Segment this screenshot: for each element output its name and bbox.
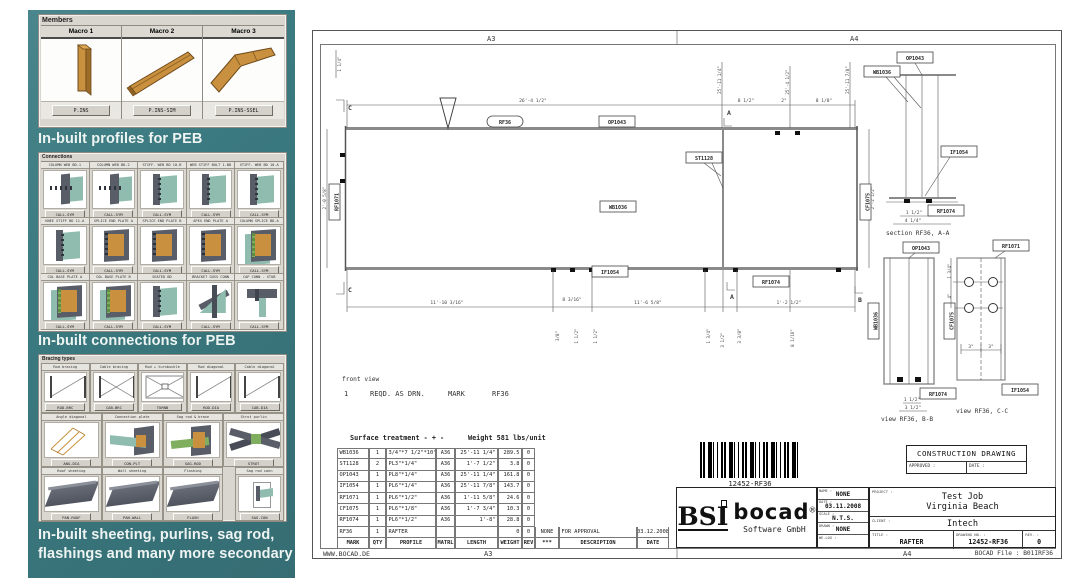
macro-beam-image[interactable] (203, 39, 284, 102)
macro-list: Macro 1 (41, 25, 284, 119)
connection-button[interactable]: CALL-SYM (45, 266, 85, 274)
heading-connections: In-built connections for PEB (38, 333, 236, 349)
bom-header: *** (535, 538, 559, 549)
part-label-rf1071: RF1071 (335, 193, 341, 211)
part-label-rf1071: RF1071 (1002, 244, 1020, 250)
sheeting-button[interactable]: PAN-ROOF (51, 513, 91, 521)
dimension-text: 4 1/4" (905, 218, 922, 224)
connection-button[interactable]: CALL-SYM (93, 322, 133, 330)
connection-thumbnail[interactable] (140, 226, 184, 265)
bom-header: DESCRIPTION (559, 538, 637, 549)
connection-label: SEATED BD (138, 274, 186, 281)
connection-thumbnail[interactable] (140, 170, 184, 209)
dimension-text: 8 3/16" (562, 297, 581, 303)
project-location: Virginia Beach (870, 502, 1055, 512)
bom-mark: ST1128 (337, 459, 369, 470)
bracing-button[interactable]: TURNB (142, 403, 182, 411)
sheeting-cell: Roof sheeting PAN-ROOF (41, 467, 102, 521)
bom-material: A36 (436, 493, 455, 504)
heading-profiles: In-built profiles for PEB (38, 131, 202, 147)
bracing-label: Rod bracing (42, 364, 89, 371)
bom-material: A36 (436, 471, 455, 482)
bom-rev: 0 (522, 493, 535, 504)
connection-thumbnail[interactable] (189, 282, 233, 321)
sheeting-thumbnail[interactable] (105, 476, 160, 512)
bom-qty: 1 (369, 516, 386, 527)
bracing-cell: Cable bracing (90, 363, 139, 413)
connection-label: COLUMN SPLICE BD-A (235, 218, 283, 225)
connection-button[interactable]: CALL-SYM (93, 210, 133, 218)
dimension-text: 8 1/2" (738, 98, 755, 104)
haunched-beam-icon (203, 39, 284, 101)
bolt-marks (340, 131, 841, 272)
rod-diagonal-icon (239, 373, 281, 401)
bom-material: A36 (436, 459, 455, 470)
title-cell: TITLE : RAFTER (870, 531, 953, 549)
website-text: WWW.BOCAD.DE (323, 550, 370, 558)
dimension-text: 3" (988, 344, 994, 350)
macro-name: Macro 1 (41, 26, 121, 39)
front-view-caption: front view (342, 376, 380, 383)
connection-cell: BRACKET GUSS CONN CALL-SYM (187, 274, 236, 330)
turnbuckle-x-icon (142, 373, 184, 401)
connection-thumbnail[interactable] (43, 226, 87, 265)
macro-button[interactable]: P.INS-SIM (133, 105, 191, 116)
rod-diagonal-icon (191, 373, 233, 401)
bocad-logo: BSI bocad® Software GmbH (676, 487, 817, 548)
connection-thumbnail[interactable] (140, 282, 184, 321)
bracing-label: Sag rod & brace (164, 414, 223, 421)
connection-label: STIFF. WEB BD 10-B (138, 162, 186, 169)
bom-material: A36 (436, 482, 455, 493)
bom-profile: PL3"*1/4" (386, 459, 436, 470)
section-marker-a-bottom: A (730, 293, 734, 301)
bom-weight: 10.3 (498, 504, 522, 515)
connection-button[interactable]: CALL-SYM (191, 210, 231, 218)
connection-button[interactable]: CALL-SYM (142, 266, 182, 274)
dimension-text: 3 1/2" (905, 405, 922, 411)
elevation-view: 1 1/4" 26'-4 1/2" 8 1/2" 2" 8 1/8" 25'-1… (322, 50, 875, 398)
bom-rows: WB1036 1 3/4"*7 1/2"*10" A36 25'-11 1/4"… (337, 448, 669, 527)
bracing-thumbnail[interactable] (44, 422, 99, 458)
section-marker-b: B (858, 296, 862, 304)
registered-mark: ® (810, 505, 816, 514)
stamp-title: CONSTRUCTION DRAWING (907, 446, 1026, 462)
connection-label: CAP CONN - STUB (235, 274, 283, 281)
part-label-op1043: OP1043 (912, 246, 930, 252)
bom-profile: RAFTER (386, 527, 436, 538)
bocad-subtitle: Software GmbH (733, 525, 815, 534)
dimension-text: 1 1/2" (904, 397, 921, 403)
part-label-op1043: OP1043 (608, 120, 626, 126)
bom-row: IF1054 1 PL6"*1/4" A36 25'-11 7/8" 143.7… (337, 482, 669, 493)
connection-label: SPLICE END PLATE B (138, 218, 186, 225)
connection-cell: CAP CONN - STUB CALL-SYM (235, 274, 284, 330)
connection-cell: COLUMN WEB BD-2 CALL-SYM (90, 162, 139, 218)
macro-button[interactable]: P.INS (52, 105, 110, 116)
dimension-text: 1'-2 1/2" (777, 300, 802, 306)
dimension-text: 1 1/2" (906, 210, 923, 216)
connection-cell: COL BASE PLATE A CALL-SYM (41, 274, 90, 330)
bom-weight: 24.6 (498, 493, 522, 504)
connection-thumbnail[interactable] (237, 282, 281, 321)
bom-mark: IF1054 (337, 482, 369, 493)
bracing-cell: Rod bracing (41, 363, 90, 413)
angle-diagonal-icon (45, 423, 99, 457)
titleblock-field-row: DATE : 03.11.2008 (818, 500, 868, 512)
connections-window: Connections COLUMN WEB BD-1 CALL-SYM COL… (38, 152, 287, 332)
dimension-text: 26'-4 1/2" (519, 98, 547, 104)
sheeting-label: Roof sheeting (42, 468, 101, 475)
part-label-rf36: RF36 (499, 120, 511, 126)
bom-material (436, 527, 455, 538)
bracing-cell: Rod + turnbuckle (138, 363, 187, 413)
bom-row: RF1074 1 PL6"*1/2" A36 1'-8" 28.8 0 (337, 516, 669, 527)
connection-thumbnail[interactable] (92, 226, 136, 265)
bom-mark: RF36 (337, 527, 369, 538)
connection-cell: APEX END PLATE A CALL-SYM (187, 218, 236, 274)
drawing-number-cell: DRAWING NO. : 12452-RF36 (953, 531, 1022, 549)
bracing-label: Cable diagonal (236, 364, 283, 371)
bracing-button[interactable]: ROD-DIA (191, 403, 231, 411)
sagrod-thumbnail[interactable] (238, 476, 281, 512)
bracing-label: Rod diagonal (188, 364, 235, 371)
connection-label: COLUMN WEB BD-2 (90, 162, 138, 169)
bom-qty: 1 (369, 493, 386, 504)
macro-cell: Macro 1 (41, 26, 122, 119)
members-window: Members Macro 1 (38, 14, 287, 128)
bracing-label: Connection plate (103, 414, 162, 421)
macro-cell: Macro 2 (122, 26, 203, 119)
bom-header: QTY (369, 538, 386, 549)
connection-thumbnail[interactable] (92, 282, 136, 321)
connection-thumbnail[interactable] (237, 170, 281, 209)
members-window-title: Members (39, 15, 286, 25)
connection-label: COLUMN WEB BD-1 (41, 162, 89, 169)
bom-rev: 0 (522, 459, 535, 470)
part-label-rf1074: RF1074 (929, 392, 947, 398)
macro-button[interactable]: P.INS-SSEL (215, 105, 273, 116)
part-label-if1054: IF1054 (601, 270, 619, 276)
sheeting-button[interactable]: PAN-WALL (112, 513, 152, 521)
part-label-wb1036: WB1036 (873, 70, 891, 76)
part-label-cf1075: CF1075 (950, 312, 956, 330)
bracing-window-title: Bracing types (39, 355, 286, 363)
bom-row: OP1043 1 PL8"*1/4" A36 25'-11 1/4" 161.8… (337, 471, 669, 482)
bracing-label: Rod + turnbuckle (139, 364, 186, 371)
revision-cell: REV. : 0 (1022, 531, 1055, 549)
sheeting-cell: Wall sheeting PAN-WALL (102, 467, 163, 521)
bom-length: 25'-11 1/4" (455, 471, 498, 482)
connection-label: SPLICE END PLATE A (90, 218, 138, 225)
connection-button[interactable]: CALL-SYM (45, 210, 85, 218)
part-label-cf1075: CF1075 (866, 193, 872, 211)
view-cc-caption: view RF36, C-C (956, 408, 1008, 415)
bracing-button[interactable]: ANG-DIA (51, 459, 91, 467)
bom-header: DATE (637, 538, 669, 549)
connection-thumbnail[interactable] (43, 282, 87, 321)
reqd-qty: 1 (344, 390, 348, 398)
part-label-wb1036: WB1036 (609, 205, 627, 211)
bom-qty: 1 (369, 471, 386, 482)
part-label-if1054: IF1054 (950, 150, 968, 156)
bom-qty: 1 (369, 482, 386, 493)
bracing-button[interactable]: SAG-ROD (173, 459, 213, 467)
bom-material: A36 (436, 504, 455, 515)
bracing-thumbnail[interactable] (93, 372, 136, 402)
bom-profile: PL6"*1/4" (386, 482, 436, 493)
view-bb-caption: view RF36, B-B (881, 416, 933, 423)
field-label: DRAWN : (819, 524, 834, 528)
bracing-thumbnail[interactable] (190, 372, 233, 402)
connection-button[interactable]: CALL-SYM (239, 322, 279, 330)
bom-length: 1'-11 5/8" (455, 493, 498, 504)
sheeting-thumbnail[interactable] (44, 476, 99, 512)
titleblock-field-row: WE-LOG : (818, 535, 868, 547)
connection-cell: STIFF. WEB BD 10-B CALL-SYM (138, 162, 187, 218)
construction-drawing-stamp: CONSTRUCTION DRAWING APPROVED : DATE : (906, 445, 1027, 474)
client-cell: CLIENT : Intech (870, 517, 1055, 531)
bom-profile: PL6"*1/2" (386, 516, 436, 527)
bom-description: FOR APPROVAL (559, 527, 637, 538)
bom-weight: 0 (498, 527, 522, 538)
dimension-text: 25'-11 1/4" (717, 66, 722, 94)
client-name: Intech (870, 517, 1055, 531)
connection-cell: KNEE STIFF BD 11-A CALL-SYM (41, 218, 90, 274)
grid-spacer (223, 467, 235, 521)
bracing-button[interactable]: STRUT (234, 459, 274, 467)
bom-qty: 1 (369, 527, 386, 538)
reqd-text: REQD. AS DRN. (370, 390, 425, 398)
connection-thumbnail[interactable] (43, 170, 87, 209)
part-label-wb1036: WB1036 (874, 312, 880, 330)
dimension-text: 1 1/2" (593, 328, 598, 343)
bom-row: CF1075 1 PL6"*1/8" A36 1'-7 3/4" 10.3 0 (337, 504, 669, 515)
bom-header: WEIGHT (498, 538, 522, 549)
connection-thumbnail[interactable] (189, 170, 233, 209)
bracing-thumbnail[interactable] (238, 372, 281, 402)
dimension-text: 25'-4 1/2" (785, 69, 790, 94)
bom-rev: 0 (522, 471, 535, 482)
bracing-button[interactable]: ROD-BRC (45, 403, 85, 411)
dimension-text: 1 1/4" (337, 56, 342, 71)
bom-qty: 2 (369, 459, 386, 470)
bom-rev: 0 (522, 504, 535, 515)
bracing-thumbnail[interactable] (44, 372, 87, 402)
field-label: NAME : (819, 489, 832, 493)
dimension-text: 11'-10 3/16" (430, 300, 463, 306)
bom-header: MATRL (436, 538, 455, 549)
bom-weight: 28.8 (498, 516, 522, 527)
bom-rev: 0 (522, 527, 535, 538)
dimension-text: 8 1/8" (816, 98, 833, 104)
bom-rev: 0 (522, 448, 535, 459)
connection-cell: SPLICE END PLATE B CALL-SYM (138, 218, 187, 274)
connection-cell: SPLICE END PLATE A CALL-SYM (90, 218, 139, 274)
bracing-row-1: Rod bracing (41, 363, 284, 413)
bracing-label: Angle diagonal (42, 414, 101, 421)
bom-row: RF1071 1 PL6"*1/2" A36 1'-11 5/8" 24.6 0 (337, 493, 669, 504)
field-label: WE-LOG : (819, 536, 836, 540)
titleblock-field-row: DRAWN : NONE (818, 523, 868, 535)
dimension-text: 3 1/2" (720, 332, 725, 347)
connection-label: WEB STIFF BOLT 1-BD (187, 162, 235, 169)
connection-label: APEX END PLATE A (187, 218, 235, 225)
bom-weight: 143.7 (498, 482, 522, 493)
part-label-rf1074: RF1074 (937, 209, 955, 215)
connection-button[interactable]: CALL-SYM (191, 266, 231, 274)
field-label: DATE : (819, 500, 832, 504)
sheeting-label: Wall sheeting (103, 468, 162, 475)
barcode-bars (700, 442, 800, 478)
bracing-label: Cable bracing (91, 364, 138, 371)
connection-cell: COL BASE PLATE B CALL-SYM (90, 274, 139, 330)
dimension-text: 8 1/16" (790, 329, 795, 347)
drawing-number-label: DRAWING NO. : (956, 532, 986, 537)
bracing-cell: Cable diagonal (235, 363, 284, 413)
macro-beam-image[interactable] (41, 39, 121, 102)
titleblock-field-row: SCALE : N.T.S. (818, 512, 868, 524)
heading-secondary: In-built sheeting, purlins, sag rod, fla… (38, 526, 293, 564)
connection-label: COL BASE PLATE B (90, 274, 138, 281)
tapered-beam-icon (122, 39, 203, 101)
dimension-text: 3/8" (555, 331, 560, 341)
connections-window-title: Connections (39, 153, 286, 161)
section-aa-caption: section RF36, A-A (886, 230, 950, 237)
bom-header: REV (522, 538, 535, 549)
title-block: PROJECT : Test Job Virginia Beach CLIENT… (869, 487, 1056, 548)
titleblock-field-row: NAME : NONE (818, 488, 868, 500)
zone-label-bottom-left: A3 (484, 550, 492, 558)
bracing-cell: Rod diagonal (187, 363, 236, 413)
bom-profile: PL6"*1/2" (386, 493, 436, 504)
bom-mark: CF1075 (337, 504, 369, 515)
barcode: 12452-RF36 (700, 442, 800, 488)
bom-date: 03.12.2008 (637, 527, 669, 538)
dimension-text: 2" (781, 98, 787, 104)
surface-treatment-note: Surface treatment - + - (350, 434, 444, 442)
bom-material: A36 (436, 448, 455, 459)
bom-length: 25'-11 7/8" (455, 482, 498, 493)
straight-column-icon (41, 39, 122, 101)
bracing-thumbnail[interactable] (226, 422, 281, 458)
bracing-cell: Strut purlin STRUT (223, 413, 284, 467)
bsi-logo: BSI (678, 504, 729, 531)
connection-thumbnail[interactable] (92, 170, 136, 209)
bracing-thumbnail[interactable] (166, 422, 221, 458)
bracing-button[interactable]: CAB-BRC (94, 403, 134, 411)
sheeting-button[interactable]: FLASH (173, 513, 213, 521)
connection-label: BRACKET GUSS CONN (187, 274, 235, 281)
bom-mark: RF1071 (337, 493, 369, 504)
macro-name: Macro 3 (203, 26, 284, 39)
bracing-button[interactable]: CAB-DIA (240, 403, 280, 411)
sheeting-cell: Flashing FLASH (163, 467, 224, 521)
revision-label: REV. : (1025, 532, 1039, 537)
bracing-thumbnail[interactable] (105, 422, 160, 458)
cable-x-icon (94, 373, 136, 401)
project-cell: PROJECT : Test Job Virginia Beach (870, 488, 1055, 517)
title-label: TITLE : (872, 532, 888, 537)
bracing-label: Strut purlin (224, 414, 283, 421)
sheeting-label: Flashing (164, 468, 223, 475)
part-label-if1054: IF1054 (1011, 388, 1029, 394)
approved-label: APPROVED : (907, 462, 966, 474)
dimension-text: 3" (968, 344, 974, 350)
flow-triangle-symbol (440, 98, 456, 128)
bom-qty: 1 (369, 448, 386, 459)
connections-grid: COLUMN WEB BD-1 CALL-SYM COLUMN WEB BD-2… (41, 161, 284, 330)
titleblock-fields: NAME : NONE DATE : 03.11.2008 SCALE : N.… (817, 487, 869, 548)
dimension-text: 3 3/8" (737, 328, 742, 343)
section-marker-c-bottom: C (348, 286, 352, 294)
macro-name: Macro 2 (122, 26, 202, 39)
bracing-thumbnail[interactable] (141, 372, 184, 402)
connection-thumbnail[interactable] (237, 226, 281, 265)
connection-cell: COLUMN SPLICE BD-A CALL-SYM (235, 218, 284, 274)
dimension-text: 2'-0 5/8" (322, 187, 327, 210)
bom-row: WB1036 1 3/4"*7 1/2"*10" A36 25'-11 1/4"… (337, 448, 669, 459)
sagrod-button[interactable]: SAG-CON (240, 513, 280, 521)
bom-mark: WB1036 (337, 448, 369, 459)
bom-length: 1'-7 1/2" (455, 459, 498, 470)
peb-feature-panel: Members Macro 1 (28, 10, 295, 578)
bom-profile: PL6"*1/8" (386, 504, 436, 515)
section-marker-c-top: C (348, 104, 352, 112)
bracing-row-2: Angle diagonal ANG-DIA Connection plate (41, 413, 284, 467)
zone-label-top-left: A3 (487, 35, 495, 43)
bom-header-row: MARK QTY PROFILE MATRL LENGTH WEIGHT REV… (337, 538, 669, 549)
rod-diagonal-icon (45, 373, 87, 401)
bom-header: PROFILE (386, 538, 436, 549)
macro-beam-image[interactable] (122, 39, 202, 102)
connection-thumbnail[interactable] (189, 226, 233, 265)
connection-label: COL BASE PLATE A (41, 274, 89, 281)
sagrod-label: Sag rod conn (236, 468, 283, 475)
bom-rev: 0 (522, 482, 535, 493)
connection-button[interactable]: CALL-SYM (45, 322, 85, 330)
dimension-text: 1 1/2" (574, 328, 579, 343)
connection-button[interactable]: CALL-SYM (93, 266, 133, 274)
dimension-text: 11'-6 5/8" (634, 300, 662, 306)
connection-label: KNEE STIFF BD 11-A (41, 218, 89, 225)
connection-button[interactable]: CALL-SYM (239, 266, 279, 274)
bracing-cell: Connection plate CON-PLT (102, 413, 163, 467)
bocad-wordmark: bocad (733, 500, 809, 524)
bom-rev: 0 (522, 516, 535, 527)
connection-button[interactable]: CALL-SYM (142, 322, 182, 330)
connection-button[interactable]: CALL-SYM (191, 322, 231, 330)
sheeting-thumbnail[interactable] (166, 476, 221, 512)
project-label: PROJECT : (872, 489, 893, 494)
connection-button[interactable]: CALL-SYM (142, 210, 182, 218)
project-name: Test Job (870, 488, 1055, 502)
bom-zone: NONE (535, 527, 559, 538)
sagrod-cell: Sag rod conn SAG-CON (235, 467, 284, 521)
dimension-text: 4" (947, 293, 952, 298)
bom-mark: OP1043 (337, 471, 369, 482)
connection-button[interactable]: CALL-SYM (239, 210, 279, 218)
weight-note: Weight 581 lbs/unit (468, 434, 546, 442)
bom-weight: 3.8 (498, 459, 522, 470)
bracing-button[interactable]: CON-PLT (112, 459, 152, 467)
client-label: CLIENT : (872, 518, 890, 523)
part-label-st1128: ST1128 (695, 156, 713, 162)
bracing-cell: Angle diagonal ANG-DIA (41, 413, 102, 467)
connection-cell: WEB STIFF BOLT 1-BD CALL-SYM (187, 162, 236, 218)
reqd-mark-label: MARK (448, 390, 466, 398)
bracing-cell: Sag rod & brace SAG-ROD (163, 413, 224, 467)
